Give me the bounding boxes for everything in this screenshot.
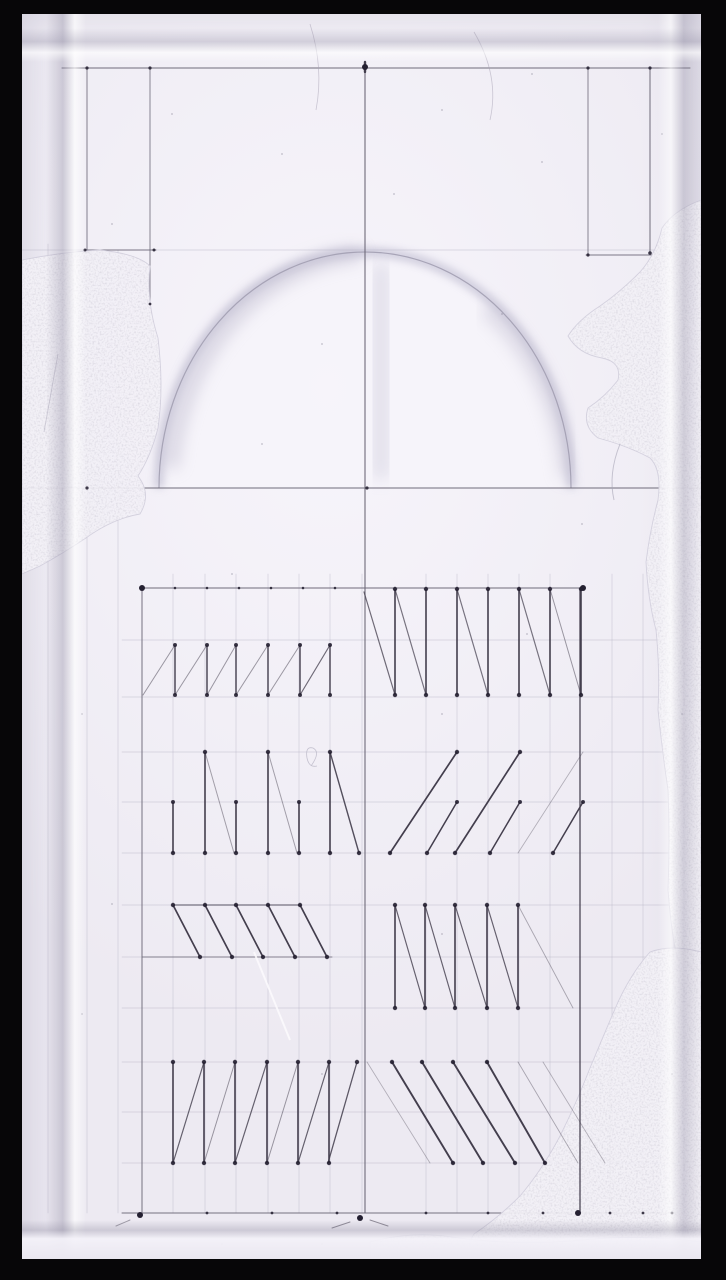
nail-point-dots: [84, 64, 674, 1221]
architectural-drawing: [22, 14, 701, 1259]
hatched-stroke-bands: [116, 62, 605, 1228]
slide-frame-border: { "figure": { "kind": "photograph-of-inc…: [0, 0, 726, 1280]
photograph: [22, 14, 701, 1259]
main-construction-lines: [22, 68, 701, 1213]
